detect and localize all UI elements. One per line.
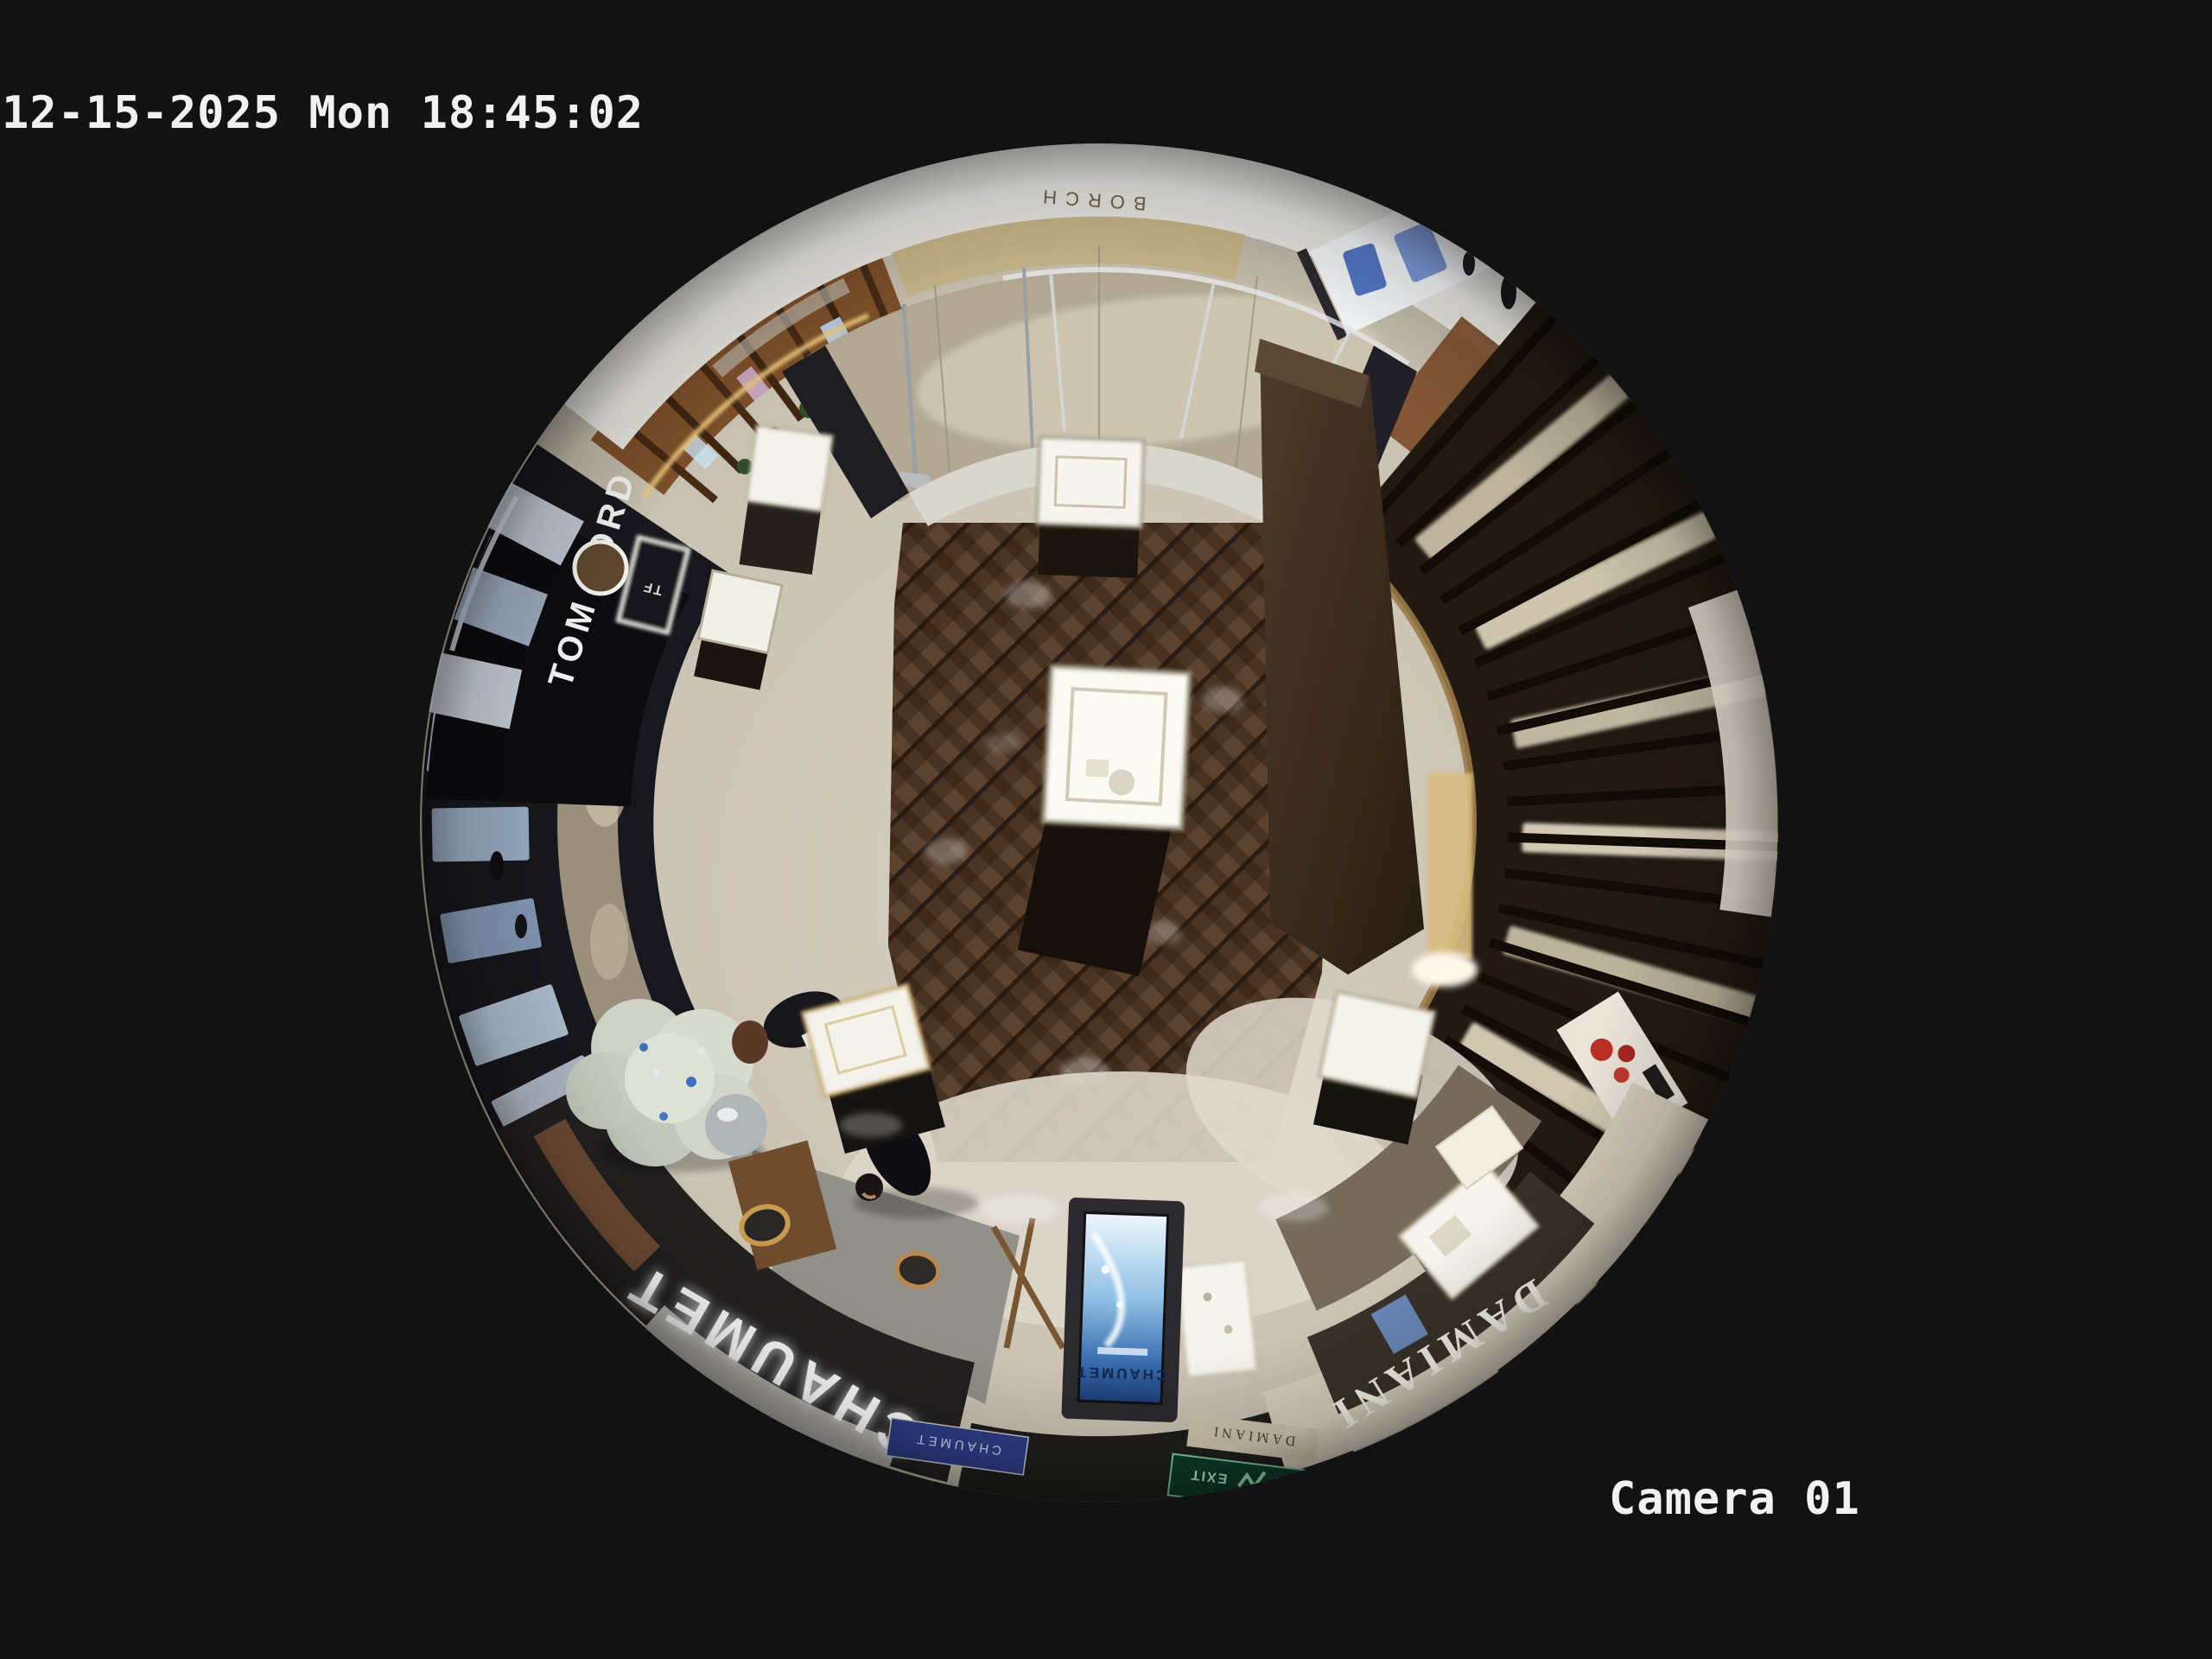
- camera-view: TOM FORD TF: [0, 0, 2212, 1659]
- lens-vignette: [420, 143, 1778, 1502]
- osd-camera-label: Camera 01: [1609, 1473, 1860, 1525]
- cctv-frame: TOM FORD TF: [0, 0, 2212, 1659]
- osd-timestamp: 12-15-2025 Mon 18:45:02: [2, 87, 644, 139]
